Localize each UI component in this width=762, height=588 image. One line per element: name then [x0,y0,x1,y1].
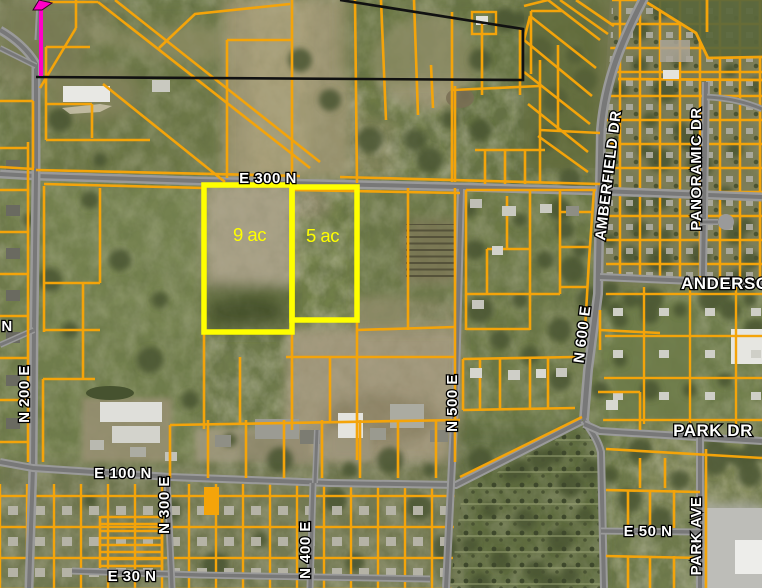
svg-text:ANDERSON: ANDERSON [681,274,762,293]
svg-text:E 50 N: E 50 N [624,523,673,540]
svg-text:9 ac: 9 ac [233,224,266,245]
svg-text:N 300 E: N 300 E [156,476,173,534]
svg-text:E 300 N: E 300 N [239,170,297,187]
svg-text:E 30 N: E 30 N [108,568,157,585]
svg-text:PARK AVE: PARK AVE [688,497,705,576]
svg-text:PANORAMIC DR: PANORAMIC DR [688,107,705,230]
svg-text:PARK DR: PARK DR [673,421,753,440]
svg-text:N: N [1,318,12,335]
svg-text:E 100 N: E 100 N [94,465,152,482]
svg-text:5 ac: 5 ac [306,225,339,246]
svg-text:N 200 E: N 200 E [16,365,33,423]
svg-text:N 400 E: N 400 E [297,521,314,579]
svg-text:N 500 E: N 500 E [444,374,461,432]
